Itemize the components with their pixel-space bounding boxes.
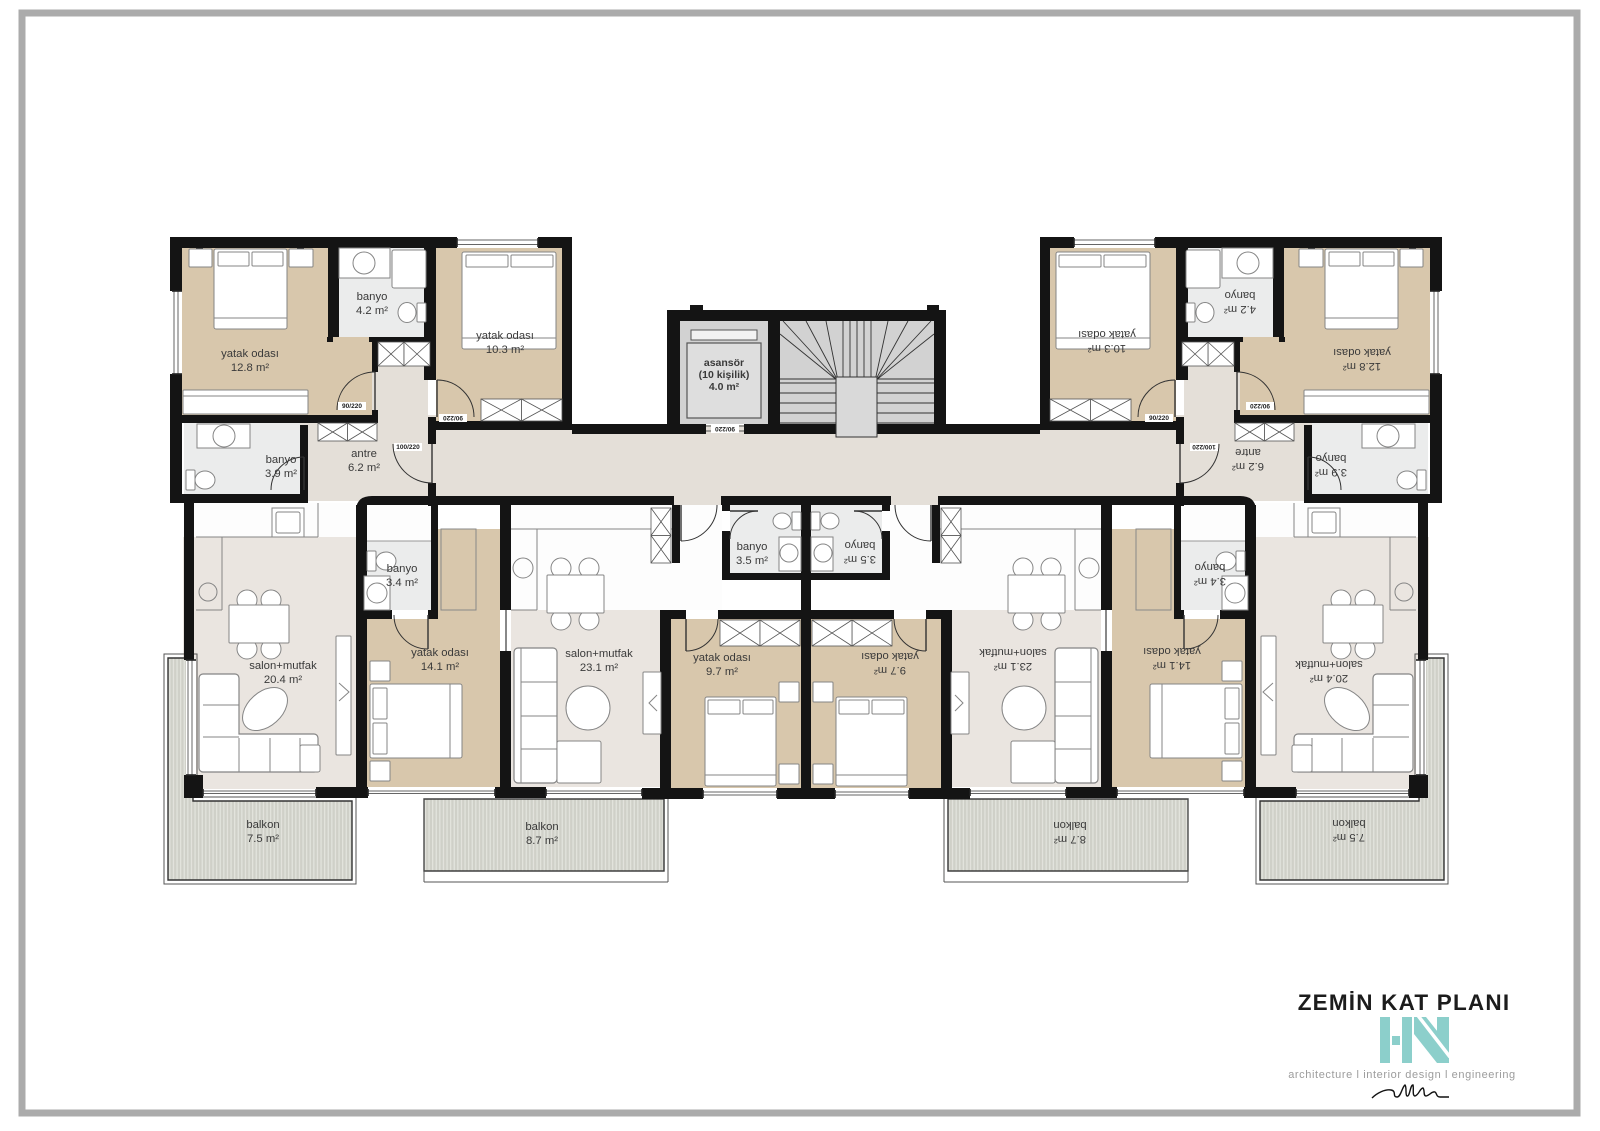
- svg-text:banyo: banyo: [1316, 452, 1347, 464]
- svg-text:23.1 m²: 23.1 m²: [994, 660, 1033, 672]
- svg-text:yatak odası: yatak odası: [693, 652, 751, 664]
- svg-text:balkon: balkon: [525, 821, 558, 833]
- svg-text:14.1 m²: 14.1 m²: [421, 661, 460, 673]
- svg-text:90/220: 90/220: [715, 425, 735, 432]
- svg-text:3.5 m²: 3.5 m²: [844, 553, 876, 565]
- svg-text:100/220: 100/220: [1192, 443, 1216, 450]
- svg-text:banyo: banyo: [387, 563, 418, 575]
- svg-text:6.2 m²: 6.2 m²: [1232, 460, 1264, 472]
- svg-text:14.1 m²: 14.1 m²: [1153, 659, 1192, 671]
- svg-text:asansör: asansör: [704, 357, 744, 369]
- svg-text:banyo: banyo: [1195, 561, 1226, 573]
- svg-text:ZEMİN KAT PLANI: ZEMİN KAT PLANI: [1298, 990, 1511, 1015]
- svg-text:banyo: banyo: [357, 291, 388, 303]
- svg-text:10.3 m²: 10.3 m²: [486, 344, 525, 356]
- svg-text:3.9 m²: 3.9 m²: [1315, 466, 1347, 478]
- svg-text:90/220: 90/220: [342, 403, 362, 410]
- svg-text:banyo: banyo: [1225, 289, 1256, 301]
- svg-text:yatak odası: yatak odası: [861, 650, 919, 662]
- svg-text:7.5 m²: 7.5 m²: [247, 833, 279, 845]
- svg-text:8.7 m²: 8.7 m²: [526, 835, 558, 847]
- svg-text:yatak odası: yatak odası: [221, 348, 279, 360]
- svg-text:yatak odası: yatak odası: [1078, 328, 1136, 340]
- svg-text:antre: antre: [351, 448, 377, 460]
- svg-text:3.4 m²: 3.4 m²: [386, 577, 418, 589]
- svg-text:3.5 m²: 3.5 m²: [736, 555, 768, 567]
- svg-text:antre: antre: [1235, 446, 1261, 458]
- svg-text:banyo: banyo: [266, 454, 297, 466]
- svg-text:balkon: balkon: [1332, 817, 1365, 829]
- svg-text:12.8 m²: 12.8 m²: [231, 362, 270, 374]
- svg-text:balkon: balkon: [246, 819, 279, 831]
- svg-text:architecture l interior desig: architecture l interior design l enginee…: [1288, 1069, 1516, 1081]
- svg-text:yatak odası: yatak odası: [411, 647, 469, 659]
- svg-text:7.5 m²: 7.5 m²: [1333, 831, 1365, 843]
- svg-text:4.2 m²: 4.2 m²: [1224, 303, 1256, 315]
- svg-text:20.4 m²: 20.4 m²: [264, 674, 303, 686]
- svg-text:yatak odası: yatak odası: [1333, 346, 1391, 358]
- svg-text:salon+mutfak: salon+mutfak: [565, 648, 633, 660]
- svg-text:(10 kişilik): (10 kişilik): [699, 369, 750, 381]
- svg-text:salon+mutfak: salon+mutfak: [1295, 658, 1363, 670]
- svg-text:90/220: 90/220: [1250, 402, 1270, 409]
- svg-text:100/220: 100/220: [396, 444, 420, 451]
- svg-text:8.7 m²: 8.7 m²: [1054, 833, 1086, 845]
- svg-text:banyo: banyo: [845, 539, 876, 551]
- svg-text:90/220: 90/220: [1149, 415, 1169, 422]
- svg-text:yatak odası: yatak odası: [476, 330, 534, 342]
- svg-text:banyo: banyo: [737, 541, 768, 553]
- svg-text:3.9 m²: 3.9 m²: [265, 468, 297, 480]
- svg-text:4.2 m²: 4.2 m²: [356, 305, 388, 317]
- svg-text:20.4 m²: 20.4 m²: [1310, 672, 1349, 684]
- svg-text:balkon: balkon: [1053, 819, 1086, 831]
- svg-text:salon+mutfak: salon+mutfak: [249, 660, 317, 672]
- svg-text:yatak odası: yatak odası: [1143, 645, 1201, 657]
- svg-text:90/220: 90/220: [443, 414, 463, 421]
- svg-text:9.7 m²: 9.7 m²: [706, 666, 738, 678]
- svg-text:23.1 m²: 23.1 m²: [580, 662, 619, 674]
- svg-text:4.0 m²: 4.0 m²: [709, 381, 740, 393]
- svg-text:9.7 m²: 9.7 m²: [874, 664, 906, 676]
- svg-text:12.8 m²: 12.8 m²: [1343, 360, 1382, 372]
- svg-text:10.3 m²: 10.3 m²: [1088, 342, 1127, 354]
- svg-text:3.4 m²: 3.4 m²: [1194, 575, 1226, 587]
- svg-text:salon+mutfak: salon+mutfak: [979, 646, 1047, 658]
- svg-text:6.2 m²: 6.2 m²: [348, 462, 380, 474]
